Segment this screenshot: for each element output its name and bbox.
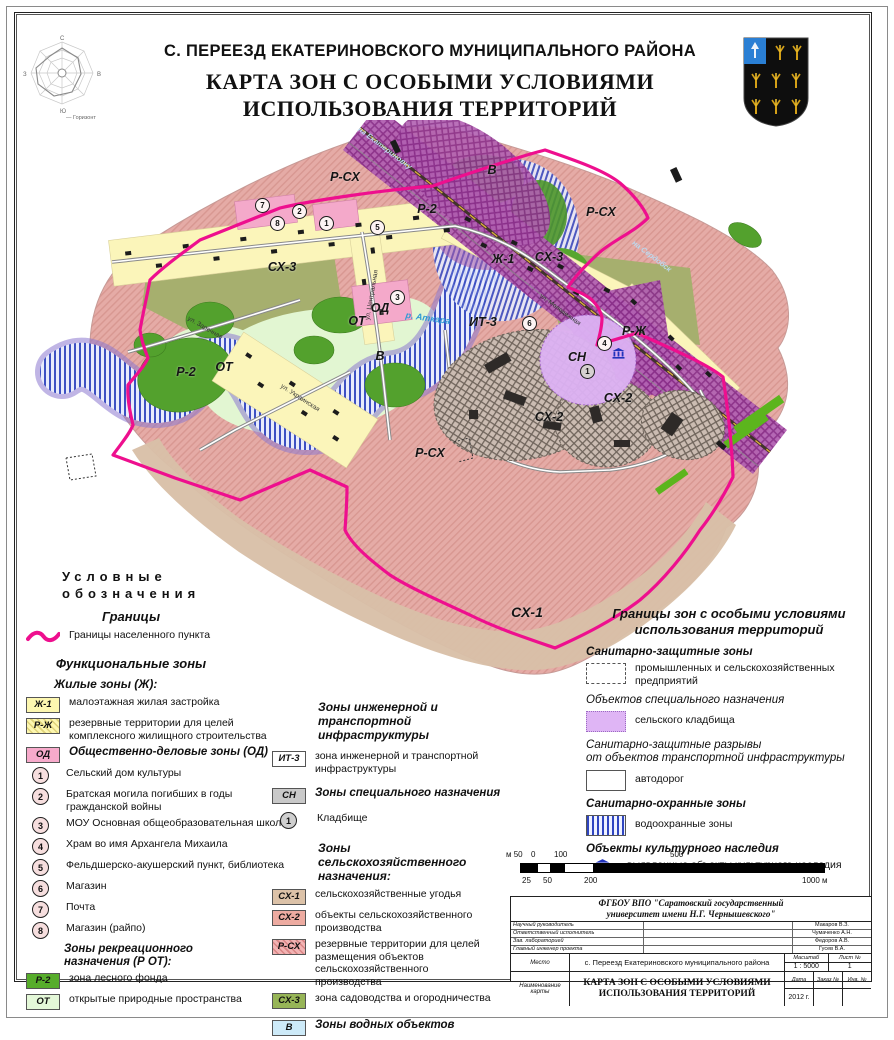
- swatch-sx2: СХ-2: [272, 910, 306, 926]
- swatch-sx1: СХ-1: [272, 889, 306, 905]
- legend-functional-title: Функциональные зоны: [26, 656, 236, 671]
- title-block: ФГБОУ ВПО "Саратовский государственный у…: [510, 896, 872, 982]
- role-label: Научный руководитель: [511, 922, 644, 929]
- legend-label: Общественно-деловые зоны (ОД): [69, 746, 268, 759]
- page-title: КАРТА ЗОН С ОСОБЫМИ УСЛОВИЯМИ ИСПОЛЬЗОВА…: [120, 68, 740, 122]
- legend-label: зона садоводства и огородничества: [315, 992, 491, 1005]
- legend-label: водоохранные зоны: [635, 818, 732, 831]
- swatch-cemetery-sanitary: [586, 711, 626, 732]
- legend-left-column: Условные обозначения Границы Границы нас…: [26, 568, 294, 1014]
- scale-value: 1 : 5000: [785, 963, 829, 972]
- map-area-sn-cemetery: [540, 315, 636, 405]
- legend-label: Магазин: [66, 880, 107, 893]
- swatch-zh1: Ж-1: [26, 697, 60, 713]
- scale-tick: 0: [531, 850, 535, 859]
- legend-label: сельскохозяйственные угодья: [315, 888, 461, 901]
- legend-num-4: 4: [32, 838, 49, 855]
- legend-label: сельского кладбища: [635, 714, 735, 727]
- org-line1: ФГБОУ ВПО "Саратовский государственный: [598, 898, 783, 909]
- compass-n: С: [60, 36, 65, 42]
- scale-bar: м 50 0 100 500 25 50 200 1000 м: [480, 850, 876, 894]
- wind-rose: С В Ю З — Горизонт: [20, 34, 104, 127]
- scale-tick: 25: [522, 876, 531, 885]
- compass-e: В: [97, 72, 101, 78]
- scale-tick: 500: [670, 850, 683, 859]
- role-name: Макаров В.З.: [793, 922, 871, 929]
- swatch-it3: ИТ-3: [272, 751, 306, 767]
- map-name-label: Наименование карты: [511, 972, 570, 1006]
- sheet-label: Лист №: [829, 954, 872, 963]
- date-value: 2012 г.: [785, 989, 814, 1006]
- page-title-line2: ИСПОЛЬЗОВАНИЯ ТЕРРИТОРИЙ: [120, 95, 740, 122]
- legend-num-6: 6: [32, 880, 49, 897]
- legend-label: зона лесного фонда: [69, 972, 168, 985]
- boundary-line-swatch: [26, 629, 60, 649]
- role-name: Гусев В.А.: [793, 946, 871, 953]
- swatch-rsx: Р-СХ: [272, 939, 306, 955]
- legend-num-2: 2: [32, 788, 49, 805]
- swatch-water-guard: [586, 815, 626, 836]
- scale-tick: 1000 м: [802, 876, 828, 885]
- legend-cemetery-num: 1: [280, 812, 297, 829]
- map-subtitle: С. ПЕРЕЕЗД ЕКАТЕРИНОВСКОГО МУНИЦИПАЛЬНОГ…: [120, 42, 740, 61]
- place-value: с. Переезд Екатериновского муниципальног…: [570, 954, 785, 971]
- org-line2: университет имени Н.Г. Чернышевского": [607, 909, 776, 920]
- swatch-rzh: Р-Ж: [26, 718, 60, 734]
- swatch-r2: Р-2: [26, 973, 60, 989]
- legend-label: резервные территории для целей комплексн…: [69, 717, 294, 742]
- scale-bar-strip: [520, 863, 825, 873]
- role-name: Чумаченко А.Н.: [793, 930, 871, 937]
- legend-residential-title: Жилые зоны (Ж):: [54, 677, 294, 691]
- swatch-industrial-sanitary: [586, 663, 626, 684]
- page-title-line1: КАРТА ЗОН С ОСОБЫМИ УСЛОВИЯМИ: [120, 68, 740, 95]
- legend-right-title2: использования территорий: [586, 622, 872, 638]
- inv-label: Инв. №: [843, 972, 871, 989]
- legend-label: Братская могила погибших в годы гражданс…: [66, 788, 294, 813]
- swatch-ot: ОТ: [26, 994, 60, 1010]
- swatch-sx3: СХ-3: [272, 993, 306, 1009]
- legend-label: Кладбище: [317, 812, 367, 825]
- legend-right-title1: Границы зон с особыми условиями: [586, 606, 872, 622]
- legend-label: промышленных и сельскохозяйственных пред…: [635, 662, 855, 687]
- legend-middle-column: Зоны инженерной и транспортной инфрастру…: [272, 694, 504, 1040]
- order-label: Заказ №: [814, 972, 843, 989]
- legend-infra-title: Зоны инженерной и транспортной инфрастру…: [318, 700, 498, 742]
- legend-label: резервные территории для целей размещени…: [315, 938, 495, 988]
- legend-recreation-title: Зоны рекреационного назначения (Р ОТ):: [64, 943, 229, 968]
- legend-label: Магазин (райпо): [66, 922, 145, 935]
- legend-label: Храм во имя Архангела Михаила: [66, 838, 228, 851]
- compass-w: З: [23, 72, 27, 78]
- role-name: Федоров А.В.: [793, 938, 871, 945]
- legend-label: автодорог: [635, 773, 684, 786]
- role-label: Зав. лабораторией: [511, 938, 644, 945]
- swatch-od: ОД: [26, 747, 60, 763]
- coat-of-arms: [742, 36, 810, 133]
- legend-label: МОУ Основная общеобразовательная школа: [66, 817, 287, 830]
- date-label: Дата: [785, 972, 814, 989]
- legend-num-8: 8: [32, 922, 49, 939]
- map-name-line2: ИСПОЛЬЗОВАНИЯ ТЕРРИТОРИЙ: [599, 989, 755, 1000]
- legend-right-column: Границы зон с особыми условиями использо…: [586, 606, 872, 877]
- legend-label: Сельский дом культуры: [66, 767, 181, 780]
- legend-label: объекты сельскохозяйственного производст…: [315, 909, 485, 934]
- legend-borders-title: Границы: [26, 609, 236, 624]
- special-title: Объектов специального назначения: [586, 694, 872, 706]
- scale-tick: 50: [543, 876, 552, 885]
- szz-title: Санитарно-защитные зоны: [586, 646, 872, 658]
- legend-label: Фельдшерско-акушерский пункт, библиотека: [66, 859, 284, 872]
- legend-num-1: 1: [32, 767, 49, 784]
- legend-label: малоэтажная жилая застройка: [69, 696, 219, 709]
- legend-num-7: 7: [32, 901, 49, 918]
- scale-tick: м 50: [506, 850, 523, 859]
- guard-title: Санитарно-охранные зоны: [586, 798, 872, 810]
- scale-tick: 100: [554, 850, 567, 859]
- legend-label: Зоны водных объектов: [315, 1019, 455, 1032]
- legend-label: зона инженерной и транспортной инфрастру…: [315, 750, 485, 775]
- legend-label: Почта: [66, 901, 95, 914]
- role-label: Главный инженер проекта: [511, 946, 644, 953]
- scale-tick: 200: [584, 876, 597, 885]
- legend-agro-title: Зоны сельскохозяйственного назначения:: [318, 841, 498, 883]
- legend-num-3: 3: [32, 817, 49, 834]
- swatch-sn: СН: [272, 788, 306, 804]
- map-name-line1: КАРТА ЗОН С ОСОБЫМИ УСЛОВИЯМИ: [583, 978, 770, 989]
- legend-title-line1: Условные: [62, 568, 294, 585]
- swatch-road-sanitary: [586, 770, 626, 791]
- gap-title2: от объектов транспортной инфраструктуры: [586, 752, 872, 765]
- legend-label: Зоны специального назначения: [315, 787, 500, 800]
- role-label: Ответственный исполнитель: [511, 930, 644, 937]
- place-label: Место: [511, 954, 570, 971]
- swatch-v: В: [272, 1020, 306, 1036]
- sheet-value: 1: [829, 963, 872, 972]
- legend-title-line2: обозначения: [62, 585, 294, 602]
- gap-title1: Санитарно-защитные разрывы: [586, 739, 872, 752]
- legend-label: открытые природные пространства: [69, 993, 242, 1006]
- legend-num-5: 5: [32, 859, 49, 876]
- scale-label: Масштаб: [785, 954, 829, 963]
- boundary-label: Границы населенного пункта: [69, 629, 210, 642]
